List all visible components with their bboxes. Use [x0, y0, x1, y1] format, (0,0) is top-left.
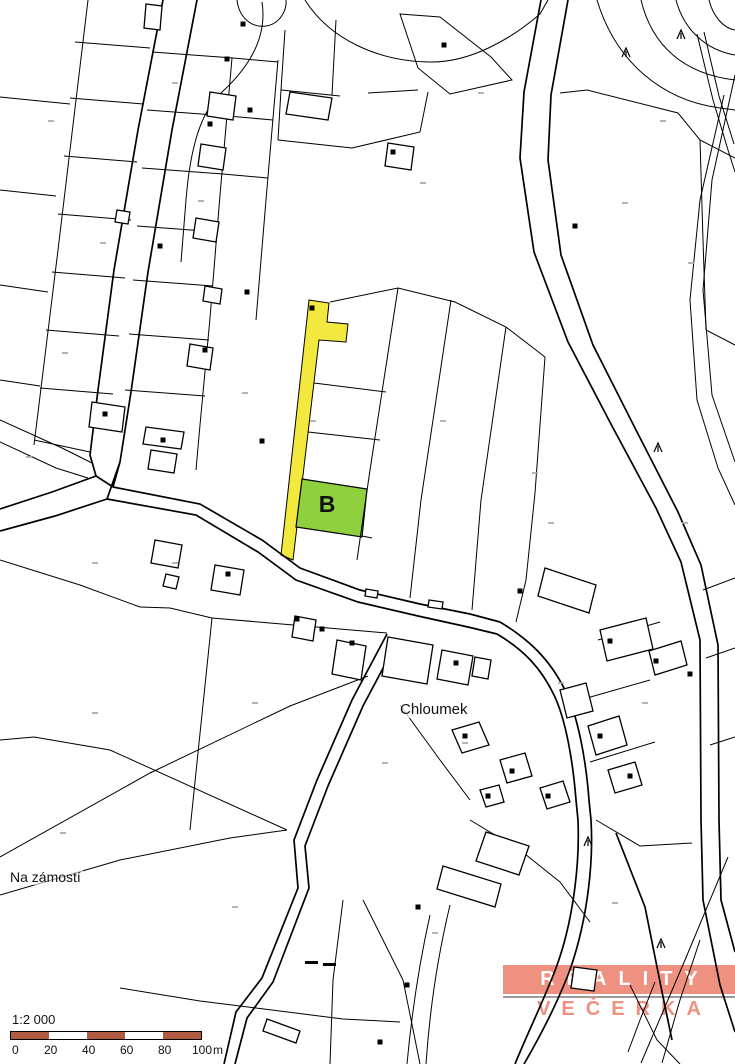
parcel-boundary-line: [0, 830, 287, 895]
building-outline: [437, 866, 501, 907]
parcel-boundary-line: [357, 288, 398, 560]
tree-symbol: [654, 443, 662, 452]
parcel-number-mark: [310, 420, 316, 422]
parcel-number-mark: [62, 352, 68, 354]
parcel-boundary-line: [0, 737, 287, 830]
parcel-number-mark: [252, 702, 258, 704]
building-symbol: [226, 572, 231, 577]
building-symbol: [454, 661, 459, 666]
building-symbol: [260, 439, 265, 444]
parcel-number-mark: [92, 562, 98, 564]
parcel-boundary-line: [330, 288, 545, 357]
parcel-boundary-line: [75, 42, 150, 48]
place-label-na-zamosti: Na zámostí: [8, 869, 83, 885]
parcel-boundary-line: [314, 383, 386, 392]
parcel-number-mark: [558, 682, 564, 684]
scale-bar-segment: [125, 1032, 163, 1039]
parcel-boundary-line: [706, 648, 735, 658]
scale-unit-label: m: [213, 1043, 223, 1057]
parcel-boundary-line: [196, 58, 232, 470]
building-symbol: [320, 627, 325, 632]
parcel-boundary-line: [133, 280, 213, 286]
parcel-boundary-line: [129, 334, 209, 340]
map-dash-mark: [323, 963, 336, 966]
building-outline: [89, 402, 125, 432]
building-symbol: [241, 22, 246, 27]
parcel-boundary-line: [330, 900, 343, 1064]
parcel-boundary-line: [278, 140, 352, 148]
scale-tick-labels: 020406080100m: [8, 1043, 238, 1057]
building-symbol: [654, 659, 659, 664]
building-symbol: [486, 794, 491, 799]
parcel-number-mark: [548, 522, 554, 524]
scale-bar: 1:2 000 020406080100m: [8, 1012, 248, 1057]
scale-tick-label: 40: [82, 1043, 95, 1057]
parcel-boundary-line: [676, 0, 735, 55]
parcel-boundary-line: [407, 915, 430, 1064]
parcel-boundary-line: [400, 705, 470, 800]
building-outline: [207, 92, 236, 120]
building-symbol: [688, 672, 693, 677]
parcel-boundary-line: [34, 0, 88, 445]
parcel-boundary-line: [0, 420, 92, 463]
building-outline: [560, 683, 593, 718]
parcel-boundary-line: [223, 174, 268, 178]
parcel-boundary-line: [228, 116, 273, 120]
parcel-boundary-line: [40, 388, 113, 394]
building-outline: [115, 210, 130, 224]
parcel-number-mark: [642, 702, 648, 704]
parcel-boundary-line: [710, 737, 735, 745]
parcel-boundary-line: [125, 390, 205, 396]
scale-bar-segment: [49, 1032, 87, 1039]
building-outline: [472, 657, 491, 679]
building-symbol: [416, 905, 421, 910]
building-symbol: [158, 244, 163, 249]
parcel-boundary-line: [70, 98, 143, 104]
parcel-boundary-line: [140, 607, 212, 618]
parcel-number-mark: [622, 202, 628, 204]
building-outline: [428, 600, 443, 609]
building-symbol: [208, 122, 213, 127]
parcel-boundary-line: [0, 285, 48, 292]
parcel-boundary-line: [256, 60, 278, 320]
building-outline: [286, 92, 332, 120]
parcel-number-mark: [382, 762, 388, 764]
parcel-number-mark: [660, 120, 666, 122]
building-outline: [500, 753, 532, 783]
building-outline: [480, 785, 504, 807]
building-outline: [452, 722, 489, 753]
building-outline: [193, 218, 219, 242]
parcel-boundary-line: [305, 0, 548, 62]
parcel-boundary-line: [0, 676, 368, 857]
building-symbol: [378, 1040, 383, 1045]
building-symbol: [203, 348, 208, 353]
parcel-boundary-line: [560, 90, 735, 158]
parcel-number-mark: [198, 200, 204, 202]
parcel-number-mark: [172, 82, 178, 84]
building-symbol: [598, 734, 603, 739]
building-outline: [382, 637, 433, 684]
parcel-number-mark: [478, 92, 484, 94]
parcel-boundary-line: [580, 680, 650, 700]
parcel-boundary-line: [400, 14, 512, 94]
scale-bar-graphic: [10, 1031, 202, 1040]
building-symbol: [350, 641, 355, 646]
scale-tick-label: 0: [12, 1043, 19, 1057]
parcel-boundary-line: [368, 90, 418, 93]
parcel-boundary-line: [278, 30, 285, 140]
building-symbol: [103, 412, 108, 417]
building-symbol: [225, 57, 230, 62]
parcel-boundary-line: [152, 52, 233, 58]
building-outline: [148, 450, 177, 473]
parcel-number-mark: [100, 242, 106, 244]
parcel-boundary-line: [472, 327, 506, 610]
building-outline: [608, 762, 642, 793]
road-line: [0, 476, 96, 509]
building-outline: [588, 716, 627, 755]
parcel-number-mark: [682, 522, 688, 524]
parcel-boundary-line: [181, 2, 263, 262]
parcel-number-mark: [60, 832, 66, 834]
road-line: [548, 0, 735, 952]
parcel-boundary-line: [142, 168, 223, 174]
building-outline: [203, 286, 222, 304]
road-line: [107, 462, 120, 499]
parcel-number-mark: [242, 392, 248, 394]
scale-tick-label: 20: [44, 1043, 57, 1057]
parcel-boundary-line: [704, 32, 734, 144]
scale-bar-segment: [11, 1032, 49, 1039]
parcel-boundary-line: [362, 536, 372, 538]
parcel-number-mark: [48, 120, 54, 122]
parcel-boundary-line: [64, 156, 137, 162]
parcel-boundary-line: [703, 578, 735, 590]
tree-symbol: [677, 30, 685, 39]
tree-symbol: [657, 939, 665, 948]
building-symbol: [546, 794, 551, 799]
parcel-boundary-line: [426, 905, 450, 1064]
scale-tick-label: 100: [192, 1043, 212, 1057]
building-outline: [198, 144, 226, 170]
building-outline: [649, 641, 687, 675]
building-symbol: [510, 769, 515, 774]
parcel-boundary-line: [597, 0, 735, 110]
building-outline: [571, 967, 597, 991]
building-symbol: [295, 617, 300, 622]
parcel-number-mark: [440, 420, 446, 422]
building-symbol: [573, 224, 578, 229]
parcel-boundary-line: [0, 380, 40, 386]
building-outline: [144, 4, 162, 30]
parcel-b-label: B: [310, 491, 344, 518]
parcel-number-mark: [232, 906, 238, 908]
building-outline: [187, 344, 213, 370]
parcel-boundary-line: [34, 440, 90, 452]
parcel-boundary-line: [46, 330, 119, 336]
building-symbol: [442, 43, 447, 48]
building-symbol: [518, 589, 523, 594]
parcel-boundary-line: [0, 560, 140, 607]
parcel-boundary-line: [0, 190, 56, 196]
parcel-boundary-line: [410, 300, 451, 598]
parcel-boundary-line: [641, 0, 735, 80]
parcel-number-mark: [26, 456, 32, 458]
building-outline: [476, 832, 529, 875]
cadastral-map-page: REALITY VEČERKA B Chloumek Na zámostí 1:…: [0, 0, 735, 1064]
scale-tick-label: 60: [120, 1043, 133, 1057]
parcel-boundary-line: [516, 357, 545, 622]
building-outline: [211, 565, 244, 595]
building-outline: [365, 589, 378, 598]
scale-bar-segment: [87, 1032, 125, 1039]
scale-ratio-label: 1:2 000: [12, 1012, 248, 1027]
building-outline: [332, 640, 366, 680]
parcel-number-mark: [92, 712, 98, 714]
building-outline: [437, 650, 473, 685]
parcel-number-mark: [432, 932, 438, 934]
building-symbol: [405, 983, 410, 988]
parcel-number-mark: [612, 902, 618, 904]
parcel-boundary-line: [308, 432, 380, 440]
building-symbol: [463, 734, 468, 739]
parcel-number-mark: [462, 742, 468, 744]
road-line: [235, 640, 398, 1064]
building-outline: [540, 781, 570, 809]
parcel-boundary-line: [0, 97, 70, 104]
parcel-boundary-line: [596, 820, 692, 846]
building-outline: [263, 1019, 300, 1043]
parcel-boundary-line: [709, 0, 735, 30]
building-symbol: [161, 438, 166, 443]
parcel-boundary-line: [233, 58, 278, 62]
road-line: [113, 0, 197, 487]
building-outline: [163, 574, 179, 589]
building-symbol: [608, 639, 613, 644]
parcel-boundary-line: [628, 982, 655, 1052]
building-symbol: [628, 774, 633, 779]
scale-bar-segment: [163, 1032, 201, 1039]
place-label-chloumek: Chloumek: [398, 701, 470, 718]
parcel-boundary-line: [190, 618, 212, 830]
parcel-number-mark: [172, 562, 178, 564]
building-symbol: [248, 108, 253, 113]
parcel-boundary-line: [0, 442, 88, 478]
parcel-boundary-line: [352, 92, 428, 148]
building-outline: [385, 143, 414, 170]
map-dash-mark: [305, 961, 318, 964]
road-line: [520, 0, 735, 1032]
parcel-number-mark: [532, 472, 538, 474]
building-outline: [538, 568, 596, 613]
parcel-number-mark: [688, 262, 694, 264]
building-symbol: [391, 150, 396, 155]
cadastral-map-canvas: [0, 0, 735, 1064]
parcel-number-mark: [420, 182, 426, 184]
scale-tick-label: 80: [158, 1043, 171, 1057]
building-symbol: [310, 306, 315, 311]
parcel-boundary-line: [363, 900, 420, 1064]
building-symbol: [245, 290, 250, 295]
